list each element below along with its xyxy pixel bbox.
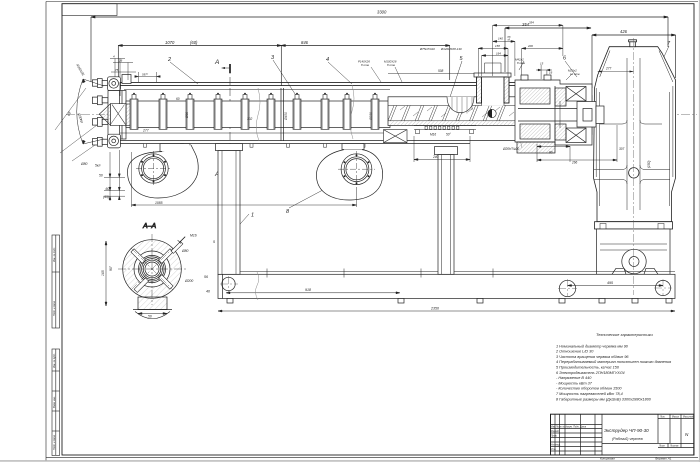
svg-text:6 Электродвигатель 2ПН180МГУХЛ: 6 Электродвигатель 2ПН180МГУХЛ4 xyxy=(556,371,625,375)
svg-text:277: 277 xyxy=(142,129,149,133)
svg-text:А–А: А–А xyxy=(142,223,157,230)
svg-text:2 Отношение L/D 30: 2 Отношение L/D 30 xyxy=(555,350,594,354)
svg-text:М16: М16 xyxy=(190,234,197,238)
svg-text:1 Номинальный диаметр червяка: 1 Номинальный диаметр червяка мм 90 xyxy=(556,344,629,348)
svg-text:- Напряжение В 440: - Напряжение В 440 xyxy=(556,376,592,380)
svg-text:426: 426 xyxy=(620,29,628,34)
svg-text:Н.контр.: Н.контр. xyxy=(551,444,561,446)
svg-text:277: 277 xyxy=(605,67,612,71)
svg-text:Формат А1: Формат А1 xyxy=(655,456,672,460)
svg-text:60: 60 xyxy=(106,187,110,191)
svg-text:3: 3 xyxy=(271,55,275,61)
svg-text:266: 266 xyxy=(571,161,578,165)
svg-text:4 Перерабатываемый материал по: 4 Перерабатываемый материал полиэтилен н… xyxy=(556,360,671,364)
svg-text:8: 8 xyxy=(286,209,290,215)
svg-text:Лист: Лист xyxy=(658,446,665,448)
svg-text:302: 302 xyxy=(247,117,253,121)
svg-text:Технические характеристики: Технические характеристики xyxy=(596,332,653,337)
svg-text:75: 75 xyxy=(115,68,119,72)
svg-text:5 Производительность, кг/час 1: 5 Производительность, кг/час 150 xyxy=(556,366,620,370)
svg-text:4: 4 xyxy=(326,57,329,63)
svg-text:50°: 50° xyxy=(446,133,452,137)
svg-text:40: 40 xyxy=(206,290,210,294)
svg-text:Ø230: Ø230 xyxy=(369,112,373,121)
svg-text:Масса: Масса xyxy=(672,416,680,418)
svg-text:Разраб.: Разраб. xyxy=(551,431,560,433)
svg-text:М16: М16 xyxy=(430,133,436,137)
svg-text:1070: 1070 xyxy=(165,40,175,45)
svg-text:М16Х26: М16Х26 xyxy=(75,63,85,76)
svg-text:(60): (60) xyxy=(190,40,198,45)
svg-text:7: 7 xyxy=(667,41,671,47)
svg-text:50: 50 xyxy=(99,174,103,178)
svg-text:- Мощность кВт 37: - Мощность кВт 37 xyxy=(556,381,593,385)
svg-text:7 Мощность нагревателей кВт 78: 7 Мощность нагревателей кВт 78,4 xyxy=(556,392,623,396)
svg-text:5кл: 5кл xyxy=(95,164,100,168)
svg-text:165: 165 xyxy=(101,270,105,276)
svg-text:Масштаб: Масштаб xyxy=(683,416,694,418)
svg-text:8 Габаритные размеры мм (ДхШхВ: 8 Габаритные размеры мм (ДхШхВ) 3300х288… xyxy=(556,397,652,401)
svg-text:80: 80 xyxy=(549,151,553,155)
svg-text:(150): (150) xyxy=(647,161,651,168)
svg-text:508: 508 xyxy=(438,69,444,73)
svg-text:(45): (45) xyxy=(103,195,109,199)
svg-text:200: 200 xyxy=(527,44,533,48)
svg-text:26: 26 xyxy=(118,59,123,63)
svg-text:8 отв: 8 отв xyxy=(517,61,525,65)
svg-text:Изм Лист № докум. Подп. Дата: Изм Лист № докум. Подп. Дата xyxy=(551,426,587,429)
svg-text:240: 240 xyxy=(432,155,439,159)
svg-text:164: 164 xyxy=(496,51,501,55)
svg-text:158: 158 xyxy=(495,44,500,48)
svg-text:60: 60 xyxy=(176,97,180,101)
svg-text:4: 4 xyxy=(113,55,115,59)
svg-text:56: 56 xyxy=(204,275,208,279)
svg-text:3300: 3300 xyxy=(377,10,387,15)
svg-text:Ø75Н7/д10: Ø75Н7/д10 xyxy=(419,47,435,51)
svg-text:Н8: Н8 xyxy=(508,37,512,39)
svg-text:495: 495 xyxy=(607,281,613,285)
svg-text:Ø80: Ø80 xyxy=(80,162,88,166)
svg-text:Копировал: Копировал xyxy=(600,456,615,460)
svg-text:307: 307 xyxy=(619,147,625,151)
svg-text:Инв. № дубл.: Инв. № дубл. xyxy=(53,353,56,368)
svg-text:Ø80: Ø80 xyxy=(181,249,189,253)
svg-text:5: 5 xyxy=(460,56,464,62)
svg-text:12 отв: 12 отв xyxy=(570,72,580,76)
svg-text:Подп. и дата: Подп. и дата xyxy=(53,434,56,450)
svg-text:140: 140 xyxy=(498,37,503,41)
svg-text:N: N xyxy=(685,432,689,437)
svg-text:15: 15 xyxy=(540,61,544,65)
svg-text:846: 846 xyxy=(301,40,309,45)
svg-text:6: 6 xyxy=(563,56,567,62)
svg-text:2350: 2350 xyxy=(430,306,439,310)
svg-text:5: 5 xyxy=(213,240,215,244)
svg-text:Взам. инв.: Взам. инв. xyxy=(53,396,56,408)
svg-text:354: 354 xyxy=(529,21,534,25)
svg-text:Утв.: Утв. xyxy=(551,449,557,451)
svg-text:2: 2 xyxy=(167,57,171,63)
svg-text:3 Частота вращения червяка об/: 3 Частота вращения червяка об/мин 96 xyxy=(556,355,629,359)
svg-text:1: 1 xyxy=(251,213,254,219)
svg-text:Листов: Листов xyxy=(669,446,679,448)
svg-text:Экструдер ЧП-90-30: Экструдер ЧП-90-30 xyxy=(604,428,649,433)
svg-text:1085: 1085 xyxy=(155,201,163,205)
svg-text:8 отв: 8 отв xyxy=(387,63,395,67)
svg-text:А: А xyxy=(214,59,219,66)
svg-text:Инв. № подл.: Инв. № подл. xyxy=(53,247,56,262)
svg-text:- Количество оборотов об/мин 1: - Количество оборотов об/мин 1500 xyxy=(556,387,622,391)
svg-text:Ø120Н8/д8-130: Ø120Н8/д8-130 xyxy=(440,47,462,51)
svg-text:16: 16 xyxy=(549,71,553,75)
svg-text:Подп. и дата: Подп. и дата xyxy=(53,300,56,316)
svg-text:Пров.: Пров. xyxy=(551,435,557,437)
svg-text:Ø450: Ø450 xyxy=(284,112,288,121)
svg-text:50: 50 xyxy=(148,315,152,319)
svg-text:597*: 597* xyxy=(142,73,149,77)
svg-text:Ø200: Ø200 xyxy=(184,279,193,283)
svg-text:918: 918 xyxy=(305,288,311,292)
svg-text:Лит.: Лит. xyxy=(659,416,666,418)
svg-text:90°: 90° xyxy=(109,265,113,271)
svg-text:8 отв: 8 отв xyxy=(361,63,369,67)
svg-text:Ø20Н7/г20: Ø20Н7/г20 xyxy=(502,147,519,151)
svg-text:(Рабочий) чертеж: (Рабочий) чертеж xyxy=(612,437,643,441)
svg-text:Ø90: Ø90 xyxy=(185,112,189,119)
